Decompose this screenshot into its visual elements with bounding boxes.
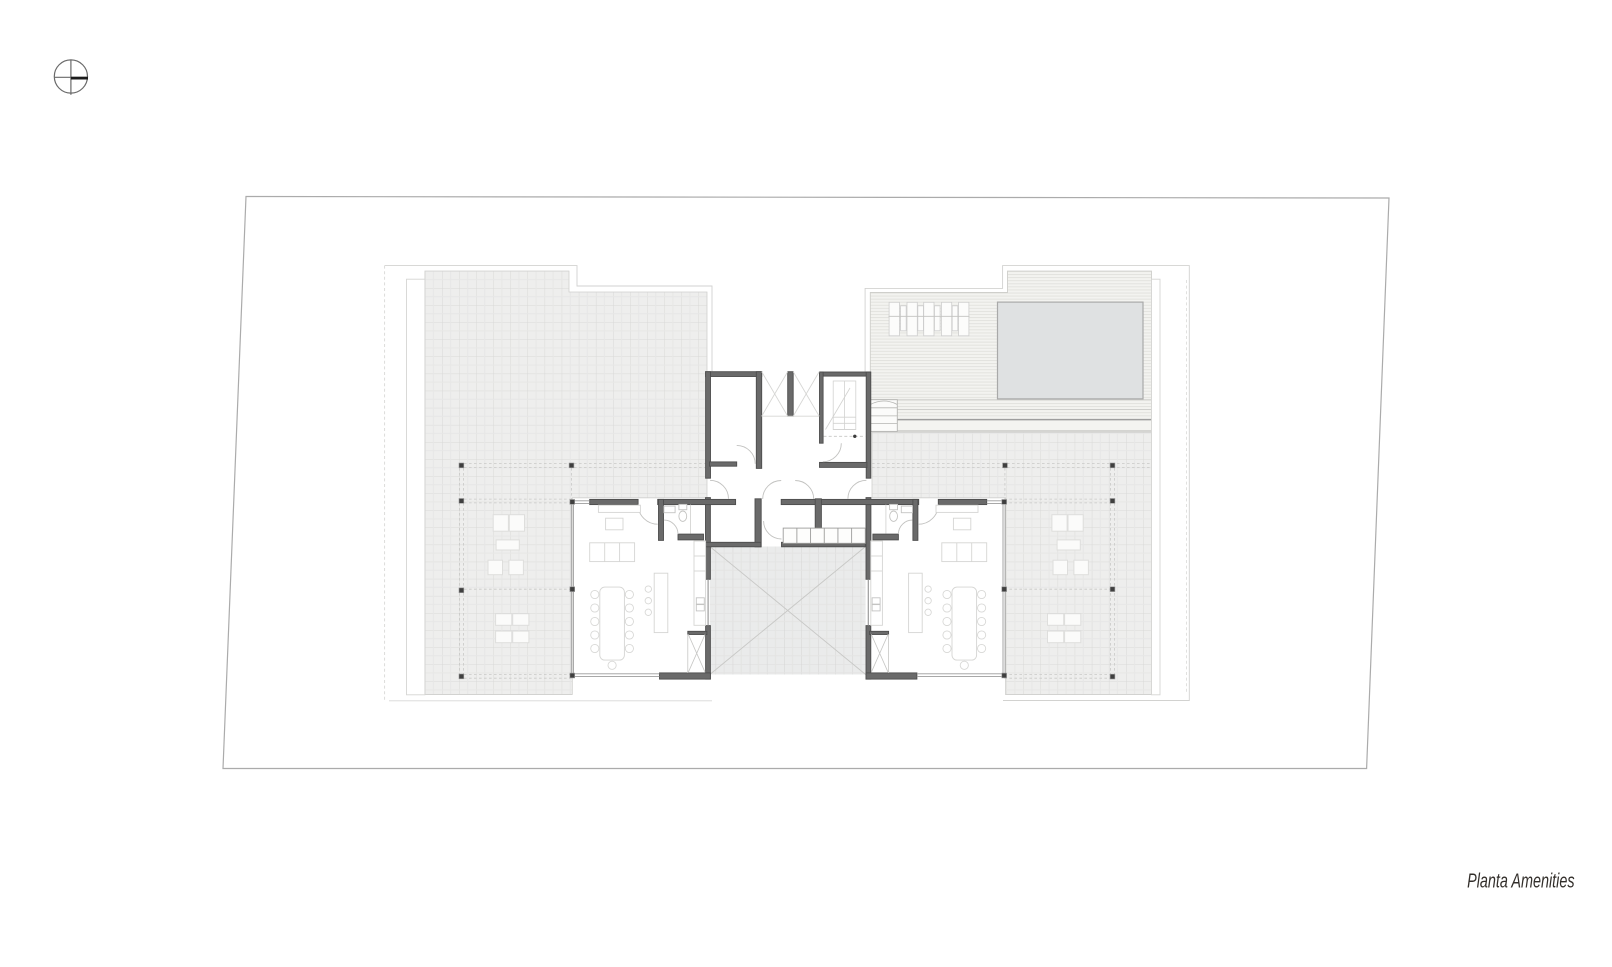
svg-text:Planta Amenities: Planta Amenities xyxy=(1467,871,1575,893)
